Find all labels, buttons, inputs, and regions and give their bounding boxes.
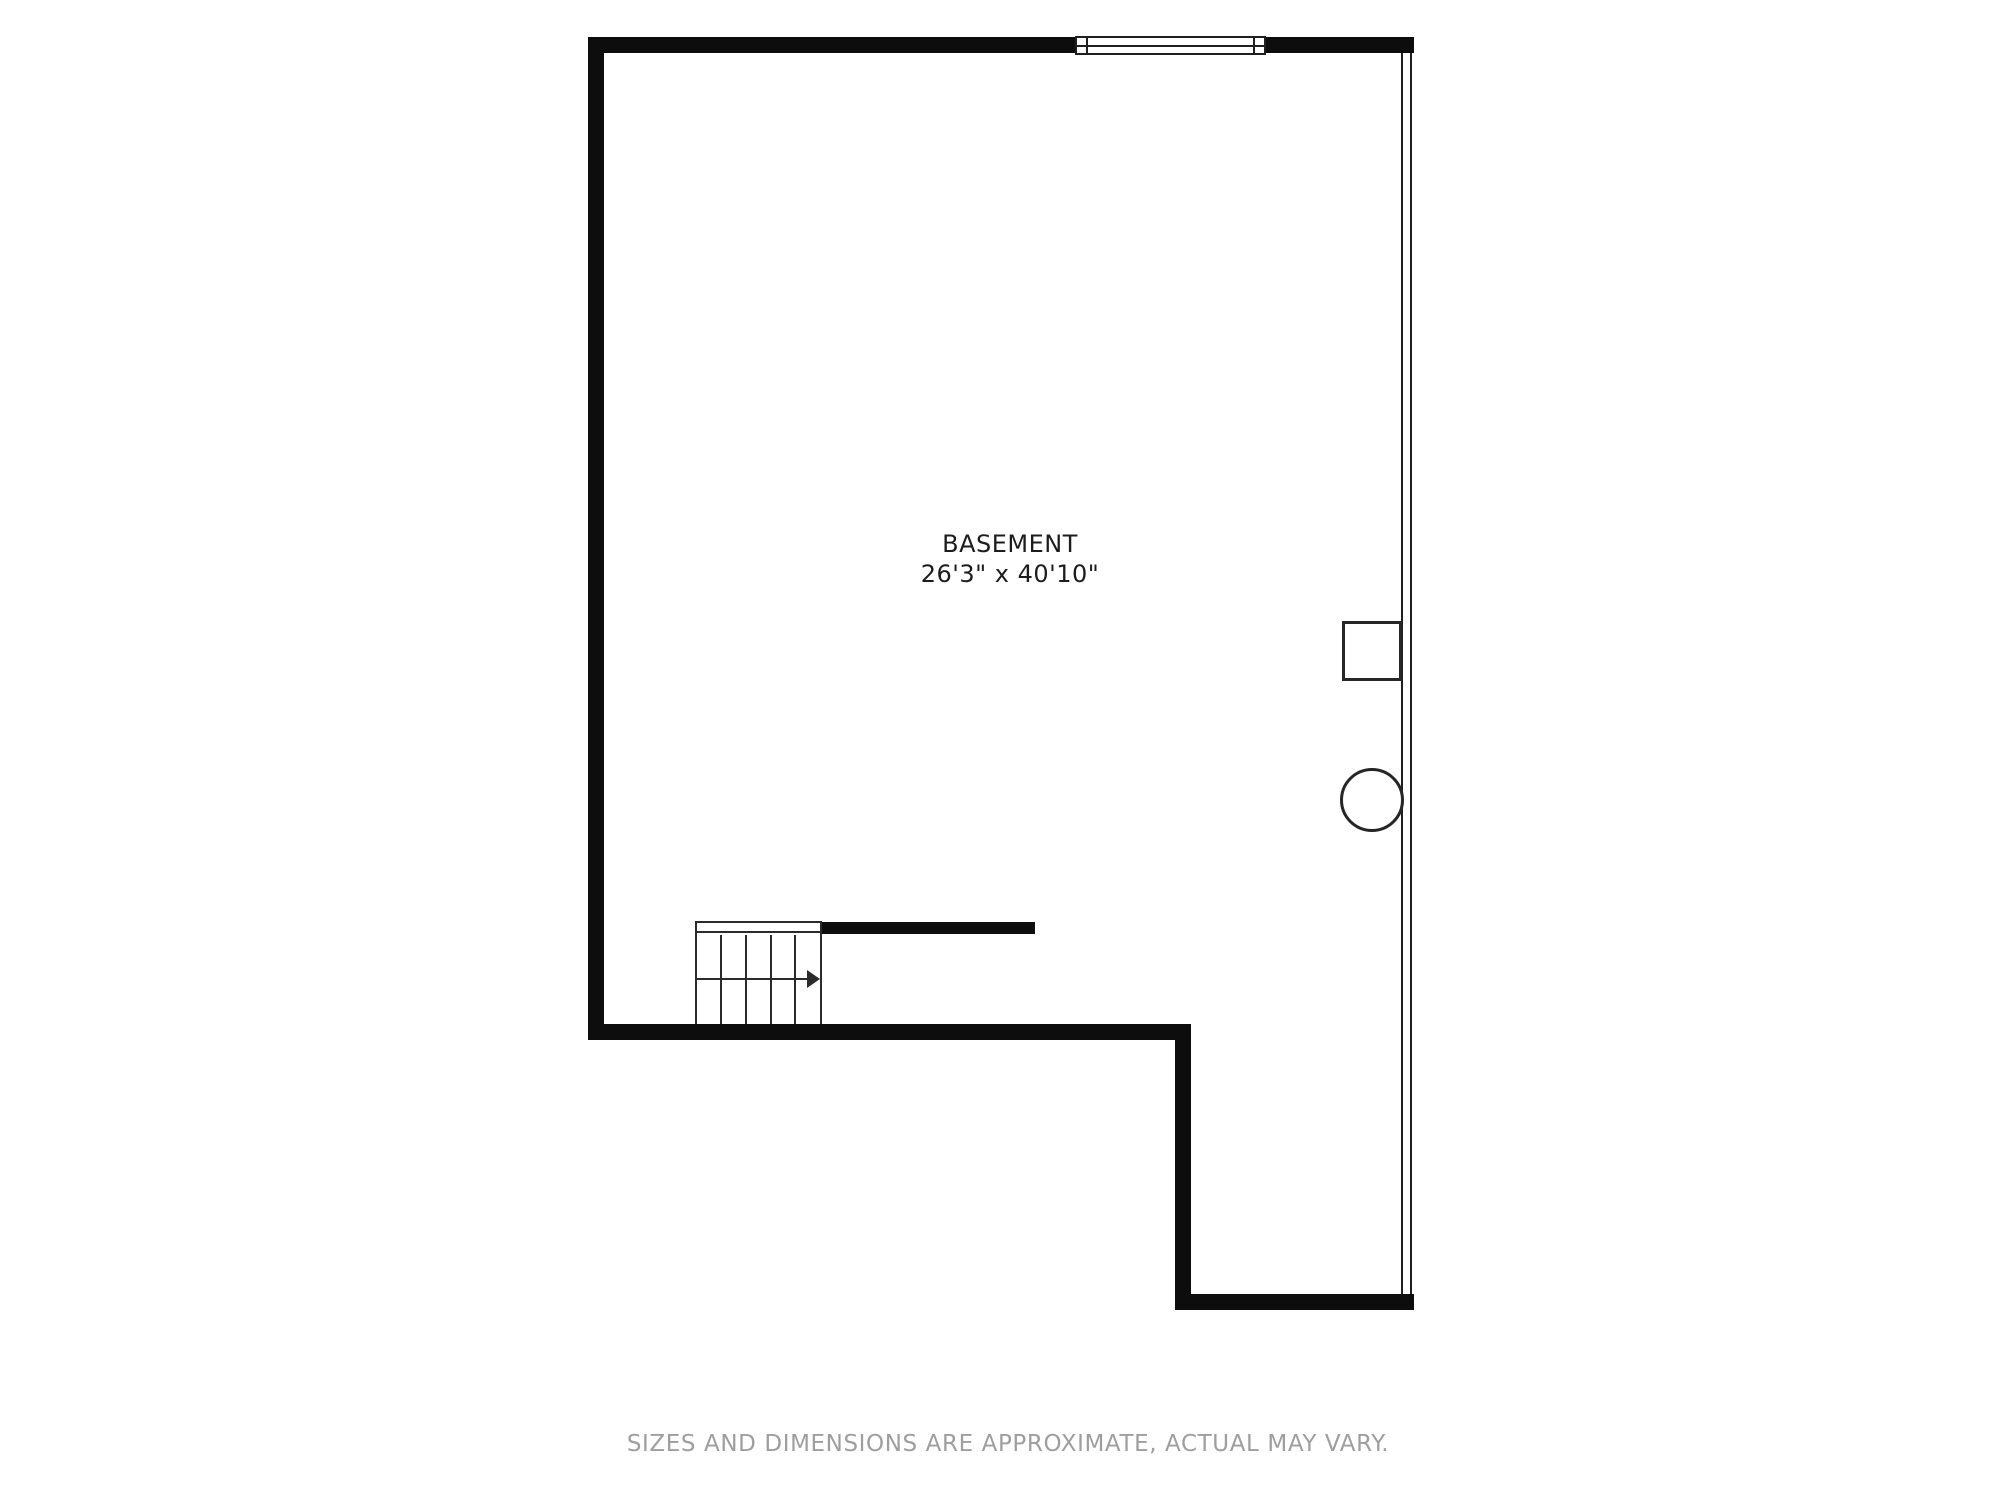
room-name: BASEMENT bbox=[921, 529, 1100, 559]
room-dimensions: 26'3" x 40'10" bbox=[921, 559, 1100, 589]
wall-bottom-right bbox=[1175, 1294, 1414, 1310]
round-column-icon bbox=[1340, 768, 1404, 832]
disclaimer-text: SIZES AND DIMENSIONS ARE APPROXIMATE, AC… bbox=[627, 1431, 1389, 1457]
wall-top bbox=[588, 37, 1414, 53]
stair-direction-arrow-icon bbox=[807, 970, 820, 988]
stair-landing bbox=[697, 923, 820, 933]
room-label: BASEMENT 26'3" x 40'10" bbox=[921, 529, 1100, 589]
wall-stair-header bbox=[821, 922, 1035, 934]
utility-box-icon bbox=[1342, 621, 1402, 681]
wall-left bbox=[588, 37, 604, 1040]
wall-bottom-left bbox=[588, 1024, 1191, 1040]
floor-plan-page: BASEMENT 26'3" x 40'10" SIZES AND DIMENS… bbox=[0, 0, 2000, 1500]
wall-step-down bbox=[1175, 1024, 1191, 1310]
window-icon bbox=[1075, 36, 1266, 55]
window-glass-line bbox=[1077, 45, 1264, 47]
staircase-icon bbox=[695, 921, 822, 1024]
wall-right-thin bbox=[1401, 53, 1412, 1294]
stair-direction-arrow-line bbox=[697, 978, 809, 980]
